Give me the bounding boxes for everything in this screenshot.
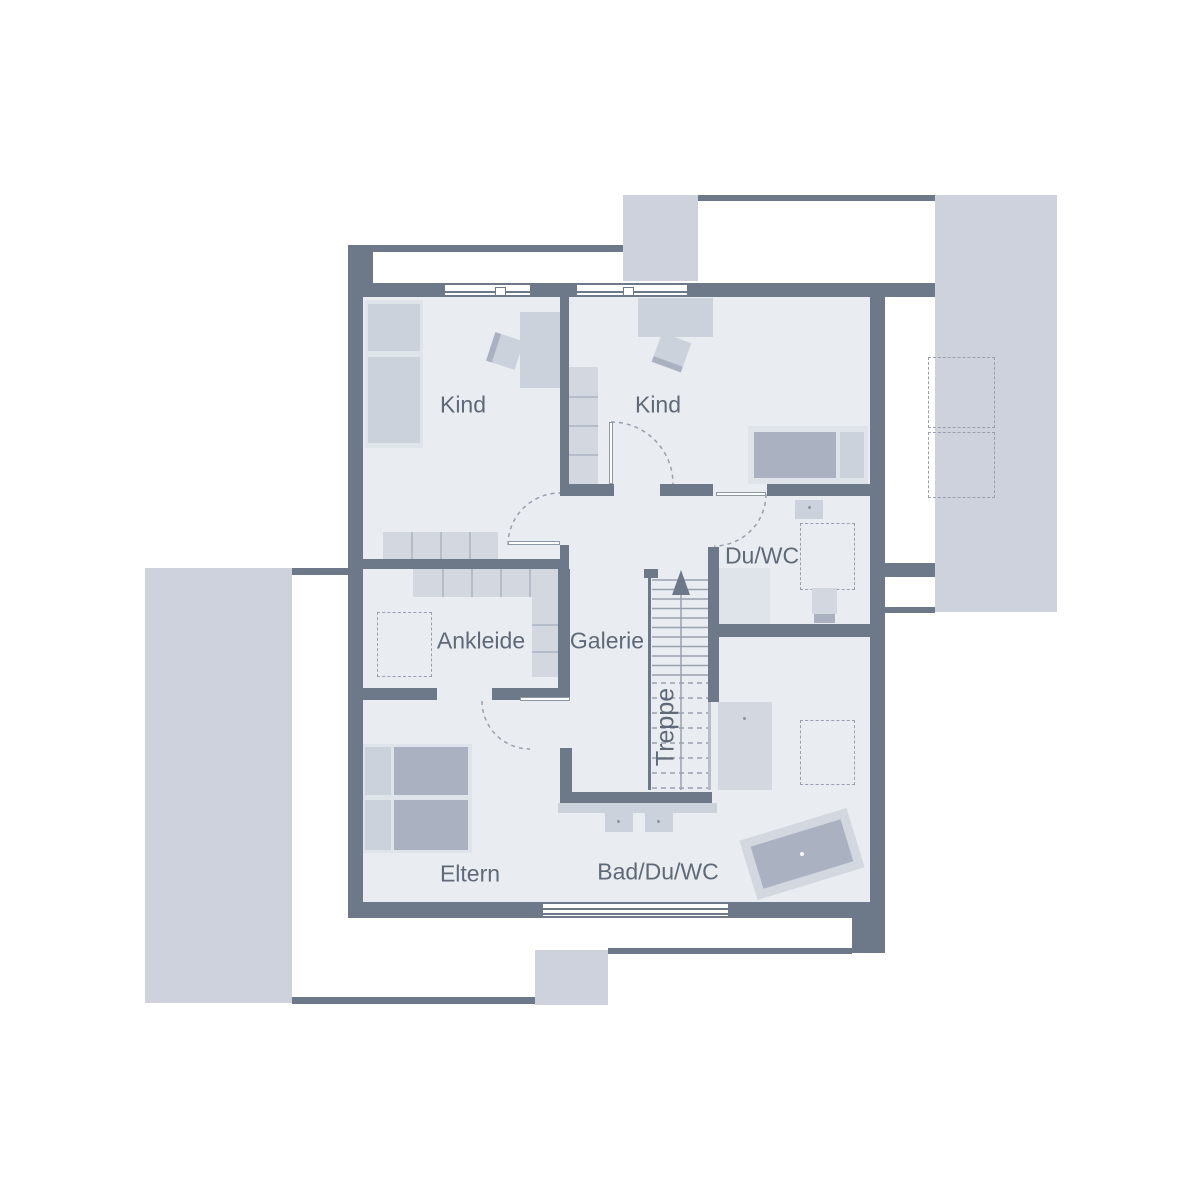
balcony-right-stub-wall (885, 563, 935, 577)
wardrobe-upper (368, 304, 420, 351)
wall-stair-stub (644, 569, 658, 578)
wc-duwc (812, 588, 837, 614)
bed-kind2-pillow (840, 432, 864, 478)
desk-kind2 (638, 298, 713, 337)
room-label-galerie: Galerie (570, 628, 644, 655)
wall-ankleide-east (558, 569, 570, 700)
balcony-left (145, 568, 292, 1003)
room-label-kind1: Kind (440, 392, 486, 419)
bed-eltern-mattress-upper (394, 747, 468, 795)
stair-edge-line (708, 702, 711, 790)
shelf-row-ankleide (413, 569, 558, 597)
room-label-eltern: Eltern (440, 861, 500, 888)
dashed-planter-upper (928, 357, 995, 428)
roof-edge-line-right (698, 195, 935, 201)
window-kind1 (445, 283, 530, 297)
door-leaf-kind1 (508, 541, 560, 545)
wall-divider-kind-low (560, 545, 569, 569)
washbasin-left (605, 812, 633, 832)
wardrobe-lower (368, 357, 420, 443)
terrace-block (535, 950, 608, 1005)
shower-bad (718, 702, 772, 790)
bed-eltern-head-upper (365, 747, 391, 795)
window-bad (543, 902, 728, 918)
wall-exterior-left (348, 245, 363, 918)
bed-eltern-head-lower (365, 800, 391, 850)
room-label-kind2: Kind (635, 392, 681, 419)
window-kind2 (577, 283, 687, 297)
room-label-duwc: Du/WC (725, 543, 799, 570)
roof-edge-line-left (348, 245, 623, 252)
room-label-treppe: Treppe (652, 688, 681, 766)
floor-plan: Kind Kind Ankleide Galerie Du/WC Eltern … (0, 0, 1200, 1200)
dashed-planter-lower (928, 432, 995, 498)
dashed-shower-duwc (800, 523, 855, 590)
desk-kind1 (520, 312, 560, 388)
shelf-column-kind2 (569, 367, 598, 484)
wall-kind2-south-b (660, 484, 713, 496)
wall-bad-under-stair (560, 792, 712, 803)
wall-duwc-west (708, 547, 719, 702)
terrace-line-right (608, 948, 852, 954)
dashed-cabinet-bad (800, 720, 855, 785)
washbasin-right (645, 812, 673, 832)
balcony-right-edge-line (885, 607, 935, 613)
balcony-left-link-line (292, 568, 348, 575)
room-label-bad: Bad/Du/WC (597, 859, 718, 886)
wall-ankleide-north (363, 559, 560, 569)
wall-kind2-south-a (560, 484, 614, 496)
door-leaf-eltern (520, 697, 570, 701)
wall-exterior-right (870, 297, 885, 918)
wall-ankleide-south-a (363, 688, 437, 700)
vanity-counter (558, 803, 717, 813)
wall-bad-north (719, 624, 870, 637)
dashed-cabinet-ankleide (377, 612, 432, 677)
door-leaf-kind2 (609, 422, 613, 484)
wall-corner-step (852, 913, 885, 953)
bed-kind2-mattress (754, 432, 836, 478)
shelf-row-kind1 (383, 532, 498, 559)
room-label-ankleide: Ankleide (437, 628, 525, 655)
wc-duwc-tank (814, 614, 835, 623)
wall-kind2-south-c (767, 484, 870, 496)
shelf-column-ankleide (532, 597, 558, 677)
washbasin-duwc (795, 500, 823, 519)
terrace-line-left (292, 997, 535, 1004)
door-leaf-duwc (716, 492, 766, 496)
dormer-block (623, 195, 698, 281)
shower-tray-duwc (719, 568, 770, 624)
wall-divider-kind (560, 297, 569, 494)
bed-eltern-mattress-lower (394, 800, 468, 850)
